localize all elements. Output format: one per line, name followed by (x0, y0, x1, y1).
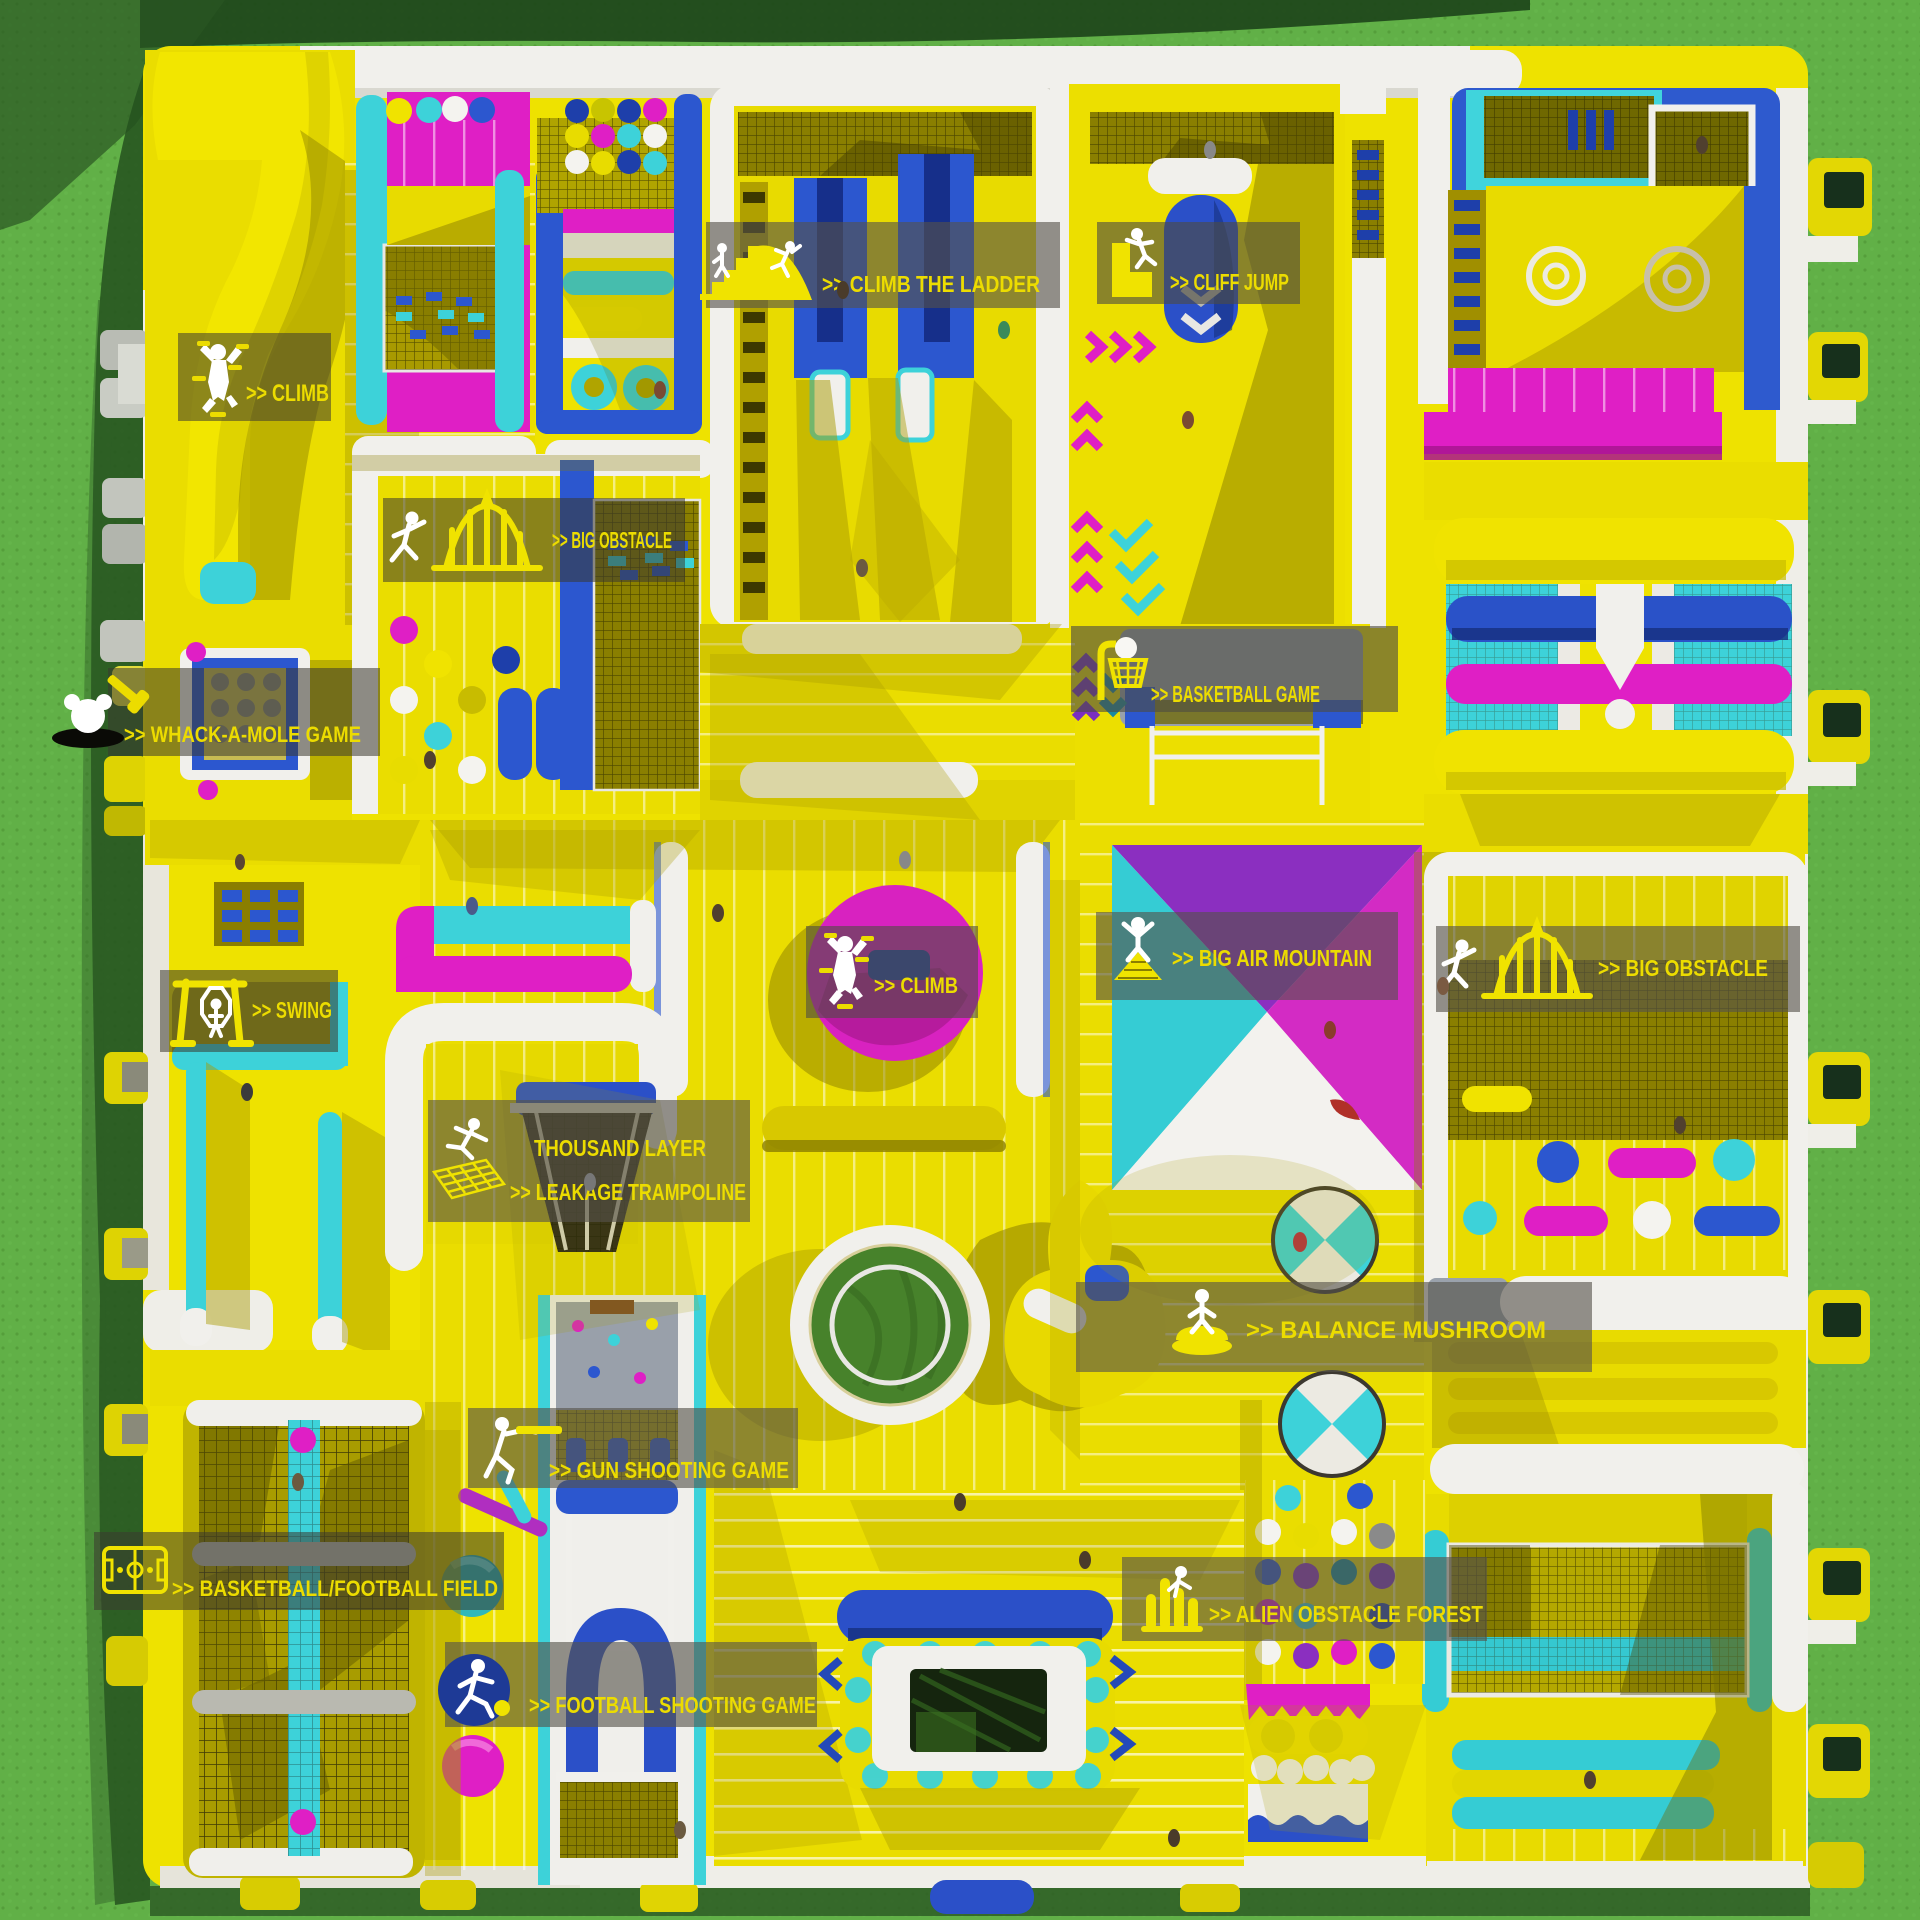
svg-text:>> CLIFF JUMP: >> CLIFF JUMP (1170, 269, 1289, 295)
svg-text:>> GUN SHOOTING GAME: >> GUN SHOOTING GAME (549, 1457, 789, 1483)
svg-text:>> BIG OBSTACLE: >> BIG OBSTACLE (552, 527, 672, 553)
svg-text:>> BIG AIR MOUNTAIN: >> BIG AIR MOUNTAIN (1172, 945, 1372, 971)
svg-text:>> SWING: >> SWING (252, 997, 332, 1023)
svg-text:>> CLIMB: >> CLIMB (874, 973, 958, 998)
svg-text:>> LEAKAGE TRAMPOLINE: >> LEAKAGE TRAMPOLINE (510, 1179, 746, 1205)
svg-text:>> WHACK-A-MOLE GAME: >> WHACK-A-MOLE GAME (124, 722, 361, 747)
svg-text:>> BALANCE MUSHROOM: >> BALANCE MUSHROOM (1246, 1317, 1546, 1344)
svg-text:>> CLIMB THE LADDER: >> CLIMB THE LADDER (822, 271, 1040, 297)
svg-text:>> BASKETBALL/FOOTBALL FIELD: >> BASKETBALL/FOOTBALL FIELD (172, 1576, 498, 1601)
svg-text:THOUSAND LAYER: THOUSAND LAYER (534, 1135, 706, 1161)
svg-text:>> FOOTBALL SHOOTING GAME: >> FOOTBALL SHOOTING GAME (529, 1692, 816, 1718)
svg-text:>> ALIEN OBSTACLE FOREST: >> ALIEN OBSTACLE FOREST (1209, 1601, 1483, 1627)
svg-text:>> BASKETBALL GAME: >> BASKETBALL GAME (1151, 681, 1320, 707)
svg-text:>> CLIMB: >> CLIMB (246, 380, 329, 407)
svg-text:>> BIG OBSTACLE: >> BIG OBSTACLE (1598, 955, 1768, 981)
